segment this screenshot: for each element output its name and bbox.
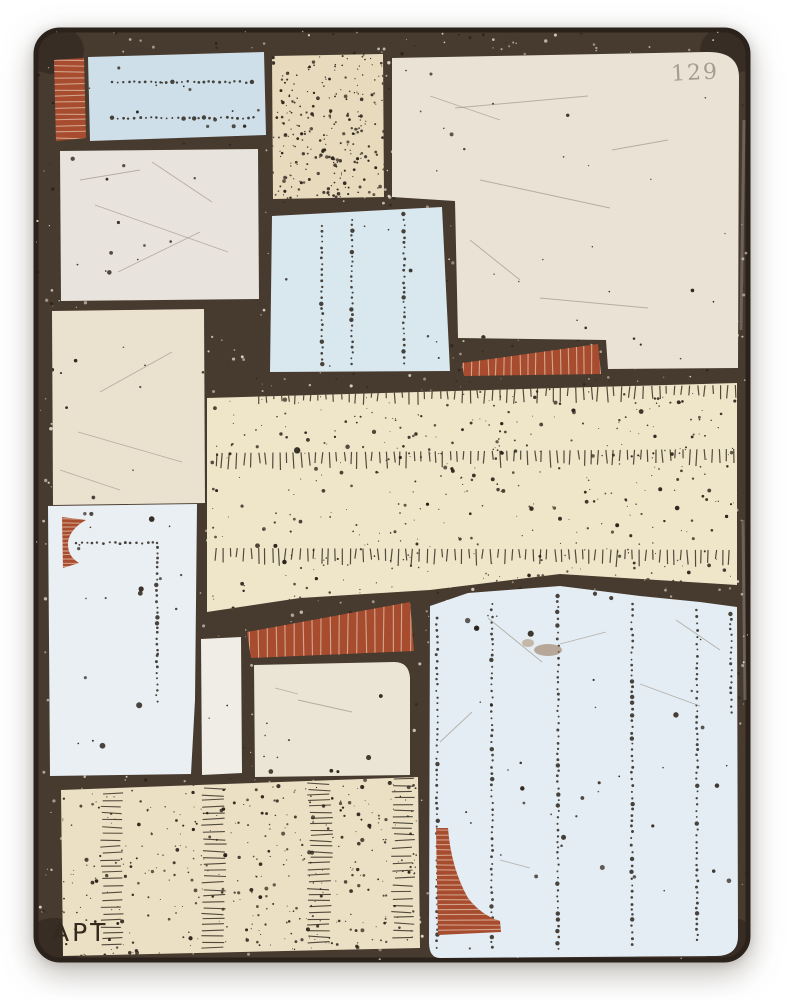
red-bar-top-left <box>54 58 86 141</box>
cream-panel-mid-left <box>52 309 205 505</box>
page-number-stamp: 129 <box>670 59 719 86</box>
white-panel-upper-left <box>60 149 259 301</box>
white-strip <box>201 637 242 775</box>
cream-panel-mid <box>254 662 410 777</box>
artwork-canvas: 129 APT. <box>0 0 788 1000</box>
tan-dotted-top <box>272 54 384 199</box>
artwork-photo: 129 APT. <box>0 0 788 1000</box>
painting-surface <box>24 26 760 966</box>
tan-band-wide <box>207 383 737 612</box>
blue-panel-left <box>48 504 197 776</box>
blue-rect-top <box>88 52 266 141</box>
artist-signature: APT. <box>52 918 116 947</box>
blue-panel-mid <box>270 207 450 372</box>
blue-panel-large <box>429 586 738 958</box>
painting-panel: 129 APT. <box>24 26 760 966</box>
